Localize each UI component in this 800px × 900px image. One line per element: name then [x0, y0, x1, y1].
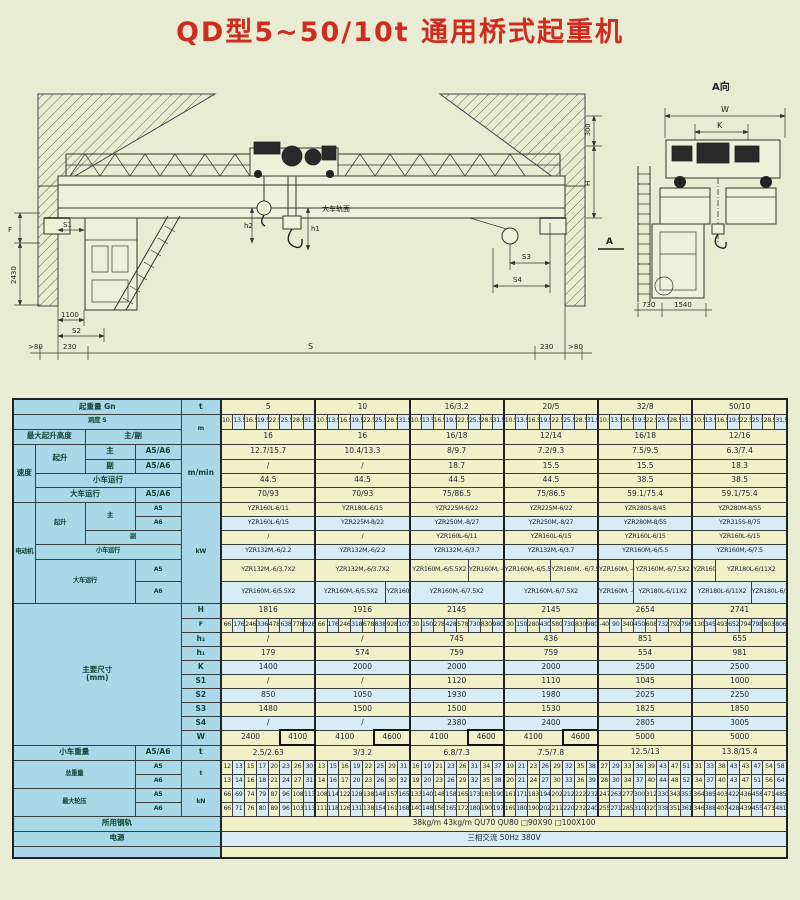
- data-cell: 13.5: [421, 414, 433, 429]
- header-cell: 最大起升高度: [13, 429, 85, 444]
- data-cell: 22.5: [645, 414, 657, 429]
- span-dimension: >80 230 S 230 >80: [28, 306, 592, 360]
- data-cell: YZR160M,-6/5.5: [598, 544, 692, 559]
- data-cell: 50/10: [692, 399, 787, 414]
- side-hook: [712, 178, 726, 248]
- data-cell: YZR132M,-6/2.2: [315, 544, 409, 559]
- data-cell: 19: [421, 760, 433, 774]
- dim-230-right-label: 230: [540, 343, 553, 351]
- data-cell: 796: [681, 618, 693, 632]
- data-cell: 30: [386, 774, 398, 788]
- dim-300-label: 300: [584, 124, 592, 136]
- data-cell: 114: [327, 788, 339, 802]
- data-cell: 148: [374, 788, 386, 802]
- side-view-a: A向 W K: [634, 80, 785, 317]
- data-cell: 154: [374, 802, 386, 816]
- dim-s4-label: S4: [513, 276, 522, 284]
- data-cell: 19.5: [633, 414, 645, 429]
- header-cell: A6: [135, 802, 181, 816]
- data-cell: 29: [610, 760, 622, 774]
- data-cell: 1480: [221, 702, 315, 716]
- data-cell: 20/5: [504, 399, 598, 414]
- data-cell: 580: [551, 618, 563, 632]
- data-cell: 981: [692, 646, 787, 660]
- data-cell: 794: [739, 618, 751, 632]
- data-cell: 3/3.2: [315, 745, 409, 760]
- data-cell: 30: [410, 618, 422, 632]
- data-cell: 171: [516, 788, 528, 802]
- data-cell: 16: [339, 760, 351, 774]
- data-cell: 278: [433, 618, 445, 632]
- header-cell: 最大轮压: [13, 788, 135, 816]
- header-cell: A6: [135, 581, 181, 603]
- data-cell: 202: [539, 802, 551, 816]
- data-cell: 320: [645, 802, 657, 816]
- data-cell: /: [221, 530, 315, 544]
- data-cell: 2500: [692, 660, 787, 674]
- data-cell: 1500: [410, 702, 504, 716]
- data-cell: YZR160M,-6/5.5X2: [410, 559, 469, 581]
- data-cell: YZR180L-6/15X2: [751, 581, 787, 603]
- data-cell: 37: [704, 774, 716, 788]
- data-cell: 36: [633, 760, 645, 774]
- data-cell: 745: [410, 632, 504, 646]
- spec-sheet-page: QD型5~50/10t 通用桥式起重机: [0, 0, 800, 900]
- data-cell: 271: [610, 802, 622, 816]
- data-cell: 240: [586, 802, 598, 816]
- data-cell: 8/9.7: [410, 444, 504, 459]
- data-cell: 43: [657, 760, 669, 774]
- data-cell: 52: [681, 774, 693, 788]
- data-cell: 16.5: [716, 414, 728, 429]
- data-cell: 158: [445, 788, 457, 802]
- data-cell: 27: [292, 774, 304, 788]
- data-cell: 980: [586, 618, 598, 632]
- data-cell: 130: [692, 618, 704, 632]
- data-cell: 176: [327, 618, 339, 632]
- data-cell: 96: [280, 802, 292, 816]
- data-cell: 43: [728, 760, 740, 774]
- data-cell: 16/3.2: [410, 399, 504, 414]
- header-cell: 电动机: [13, 502, 35, 603]
- header-cell: t: [181, 745, 221, 760]
- data-cell: 194: [539, 788, 551, 802]
- data-cell: 89: [268, 802, 280, 816]
- data-cell: 25.5: [468, 414, 480, 429]
- data-cell: 70/93: [315, 487, 409, 502]
- data-cell: 37: [492, 760, 504, 774]
- drawing-area: h2 h1 大车轨面: [0, 58, 800, 395]
- data-cell: 19.5: [445, 414, 457, 429]
- data-cell: 19.5: [351, 414, 363, 429]
- data-cell: 161: [504, 788, 516, 802]
- data-cell: 31.5: [681, 414, 693, 429]
- header-cell: A5: [135, 788, 181, 802]
- data-cell: 247: [598, 788, 610, 802]
- data-cell: 16.5: [433, 414, 445, 429]
- data-cell: 19.5: [256, 414, 268, 429]
- data-cell: 232: [574, 802, 586, 816]
- header-cell: S3: [181, 702, 221, 716]
- data-cell: YZR160L-6/11: [410, 530, 504, 544]
- data-cell: 13.5: [704, 414, 716, 429]
- data-cell: 345: [704, 618, 716, 632]
- data-cell: 75/86.5: [410, 487, 504, 502]
- header-cell: m: [181, 414, 221, 444]
- data-cell: YZR225M-6/22: [504, 502, 598, 516]
- data-cell: 25.5: [280, 414, 292, 429]
- data-cell: 759: [410, 646, 504, 660]
- data-cell: 21: [433, 760, 445, 774]
- side-end-truck: [652, 224, 704, 298]
- data-cell: 14: [315, 774, 327, 788]
- data-cell: 25.5: [563, 414, 575, 429]
- data-cell: 179: [221, 646, 315, 660]
- header-cell: 主/副: [85, 429, 181, 444]
- header-cell: A5: [135, 559, 181, 581]
- data-cell: 21: [516, 760, 528, 774]
- data-cell: 3005: [692, 716, 787, 730]
- data-cell: 2145: [410, 603, 504, 618]
- data-cell: 40: [645, 774, 657, 788]
- data-cell: 16/18: [410, 429, 504, 444]
- data-cell: 246: [339, 618, 351, 632]
- data-cell: YZR225M-6/22: [410, 502, 504, 516]
- data-cell: 574: [315, 646, 409, 660]
- data-cell: 30: [610, 774, 622, 788]
- data-cell: 838: [374, 618, 386, 632]
- data-cell: 23: [362, 774, 374, 788]
- data-cell: 2.5/2.63: [221, 745, 315, 760]
- data-cell: 34: [692, 774, 704, 788]
- data-cell: 1120: [410, 674, 504, 688]
- data-cell: 351: [669, 802, 681, 816]
- data-cell: 16.5: [622, 414, 634, 429]
- data-cell: 58: [775, 760, 787, 774]
- data-cell: 10.5: [410, 414, 422, 429]
- data-cell: 13.5: [233, 414, 245, 429]
- data-cell: 180: [468, 802, 480, 816]
- data-cell: 33: [563, 774, 575, 788]
- data-cell: 25: [374, 760, 386, 774]
- data-cell: 23: [445, 760, 457, 774]
- data-cell: 40: [716, 774, 728, 788]
- data-cell: YZR180L-6/11X2: [633, 581, 692, 603]
- header-cell: S1: [181, 674, 221, 688]
- data-cell: 2000: [410, 660, 504, 674]
- header-cell: H: [181, 603, 221, 618]
- data-cell: YZR160M, -6/7.5X2: [551, 559, 598, 581]
- header-cell: S2: [181, 688, 221, 702]
- data-cell: 806: [775, 618, 787, 632]
- data-cell: 15.5: [504, 459, 598, 473]
- data-cell: YZR160M,-6/5.5X2: [504, 559, 551, 581]
- data-cell: 47: [739, 774, 751, 788]
- data-cell: 277: [622, 788, 634, 802]
- data-cell: 1050: [315, 688, 409, 702]
- header-cell: A5: [135, 502, 181, 516]
- header-cell: A5/A6: [135, 487, 181, 502]
- data-cell: 13.8/15.4: [692, 745, 787, 760]
- data-cell: /: [315, 716, 409, 730]
- spec-table-wrap: 起重量 Gnt51016/3.220/532/850/10跨度 Sm10.513…: [12, 398, 788, 859]
- data-cell: /: [221, 716, 315, 730]
- end-pulley: [470, 218, 518, 244]
- data-cell: 66: [221, 788, 233, 802]
- data-cell: 111: [315, 802, 327, 816]
- data-cell: YZR160M,-6/5.5X2: [221, 581, 315, 603]
- data-cell: 43: [728, 774, 740, 788]
- data-cell: 485: [775, 788, 787, 802]
- data-cell: 1980: [504, 688, 598, 702]
- data-cell: YZR132M,-6/3.7X2: [315, 559, 409, 581]
- data-cell: 31: [398, 760, 410, 774]
- data-cell: 2400: [504, 716, 598, 730]
- data-cell: 30: [304, 760, 316, 774]
- data-cell: YZR250M,-8/27: [504, 516, 598, 530]
- data-cell: 458: [751, 788, 763, 802]
- data-cell: YZR160M, -6/7.5X2: [468, 559, 503, 581]
- data-cell: 638: [280, 618, 292, 632]
- data-cell: 39: [586, 774, 598, 788]
- data-cell: 38kg/m 43kg/m QU70 QU80 □90X90 □100X100: [221, 816, 787, 831]
- driver-cab: [85, 218, 137, 310]
- data-cell: 263: [610, 788, 622, 802]
- data-cell: 353: [681, 788, 693, 802]
- data-cell: 10.5: [598, 414, 610, 429]
- data-cell: 14: [233, 774, 245, 788]
- data-cell: 928: [386, 618, 398, 632]
- data-cell: 1045: [598, 674, 692, 688]
- data-cell: YZR132M,-6/2.2: [221, 544, 315, 559]
- data-cell: 5000: [598, 730, 692, 745]
- data-cell: 2000: [504, 660, 598, 674]
- data-cell: 25.5: [374, 414, 386, 429]
- data-cell: 32: [563, 760, 575, 774]
- data-cell: 76: [245, 802, 257, 816]
- header-cell: t: [181, 399, 221, 414]
- data-cell: 19.5: [728, 414, 740, 429]
- data-cell: 35: [574, 760, 586, 774]
- data-cell: 655: [692, 632, 787, 646]
- data-cell: 12.7/15.7: [221, 444, 315, 459]
- data-cell: 2741: [692, 603, 787, 618]
- data-cell: 23: [527, 760, 539, 774]
- data-cell: 38: [716, 760, 728, 774]
- data-cell: 255: [598, 802, 610, 816]
- data-cell: /: [315, 674, 409, 688]
- data-cell: 108: [292, 788, 304, 802]
- data-cell: 66: [221, 618, 233, 632]
- data-cell: 28.5: [763, 414, 775, 429]
- dim-h1-label: h1: [311, 225, 320, 233]
- data-cell: 128: [351, 788, 363, 802]
- data-cell: 422: [728, 788, 740, 802]
- data-cell: 1000: [692, 674, 787, 688]
- data-cell: 10: [315, 399, 409, 414]
- data-cell: 37: [633, 774, 645, 788]
- dim-s2-label: S2: [72, 327, 81, 335]
- data-cell: 10.5: [692, 414, 704, 429]
- data-cell: 18.7: [410, 459, 504, 473]
- data-cell: 732: [657, 618, 669, 632]
- page-title: QD型5~50/10t 通用桥式起重机: [0, 10, 800, 49]
- data-cell: 2380: [410, 716, 504, 730]
- data-cell: 16/18: [598, 429, 692, 444]
- data-cell: 24: [527, 774, 539, 788]
- data-cell: 13.5: [327, 414, 339, 429]
- data-cell: 38: [586, 760, 598, 774]
- header-cell: 电源: [13, 831, 221, 846]
- data-cell: 三相交流 50Hz 380V: [221, 831, 787, 846]
- data-cell: 310: [633, 802, 645, 816]
- data-cell: 4100: [504, 730, 563, 745]
- data-cell: 108: [315, 788, 327, 802]
- data-cell: 471: [763, 788, 775, 802]
- data-cell: 407: [716, 802, 728, 816]
- header-cell: 起升: [35, 502, 85, 544]
- data-cell: 31: [304, 774, 316, 788]
- header-cell: 大车运行: [35, 559, 135, 603]
- dim-w-label: W: [721, 105, 729, 114]
- data-cell: YZR160M,-6/5.5X2: [315, 581, 386, 603]
- data-cell: 48: [669, 774, 681, 788]
- header-cell: A5: [135, 760, 181, 774]
- data-cell: 131: [351, 802, 363, 816]
- dim-gt80-left-label: >80: [28, 343, 43, 351]
- data-cell: 140: [421, 788, 433, 802]
- data-cell: 27: [539, 774, 551, 788]
- data-cell: YZR160L-6/15: [598, 530, 692, 544]
- data-cell: 64: [775, 774, 787, 788]
- data-cell: 980: [492, 618, 504, 632]
- data-cell: 19.5: [539, 414, 551, 429]
- data-cell: 35: [480, 774, 492, 788]
- header-cell: A6: [135, 516, 181, 530]
- data-cell: 165: [457, 788, 469, 802]
- data-cell: 87: [268, 788, 280, 802]
- data-cell: 51: [681, 760, 693, 774]
- data-cell: /: [221, 674, 315, 688]
- data-cell: 197: [492, 802, 504, 816]
- dim-230-left-label: 230: [63, 343, 76, 351]
- data-cell: 361: [681, 802, 693, 816]
- header-cell: kW: [181, 502, 221, 603]
- data-cell: 1530: [504, 702, 598, 716]
- header-cell: 副: [85, 530, 181, 544]
- dim-k-label: K: [717, 121, 723, 130]
- data-cell: 113: [304, 788, 316, 802]
- data-cell: 330: [657, 788, 669, 802]
- dim-1540-label: 1540: [674, 301, 692, 309]
- data-cell: 1930: [410, 688, 504, 702]
- side-trolley: [666, 140, 780, 188]
- data-cell: 2400: [221, 730, 280, 745]
- data-cell: 90: [610, 618, 622, 632]
- data-cell: 75/86.5: [504, 487, 598, 502]
- data-cell: 16: [245, 774, 257, 788]
- data-cell: 66: [221, 802, 233, 816]
- data-cell: 428: [728, 802, 740, 816]
- data-cell: 403: [716, 788, 728, 802]
- data-cell: 478: [268, 618, 280, 632]
- data-cell: 928: [304, 618, 316, 632]
- data-cell: 13: [315, 760, 327, 774]
- data-cell: YZR180L-6/11X2: [716, 559, 787, 581]
- data-cell: 51: [751, 774, 763, 788]
- section-arrow: A: [598, 237, 624, 249]
- data-cell: 803: [763, 618, 775, 632]
- data-cell: 26: [445, 774, 457, 788]
- data-cell: 28.5: [292, 414, 304, 429]
- data-cell: 798: [751, 618, 763, 632]
- data-cell: 428: [445, 618, 457, 632]
- data-cell: 34: [480, 760, 492, 774]
- header-cell: W: [181, 730, 221, 745]
- data-cell: 118: [327, 802, 339, 816]
- data-cell: 1825: [598, 702, 692, 716]
- dims-right-wall: 300 H: [584, 116, 602, 218]
- header-cell: K: [181, 660, 221, 674]
- data-cell: YZR160L-6/11: [221, 502, 315, 516]
- data-cell: 113: [304, 802, 316, 816]
- data-cell: 336: [256, 618, 268, 632]
- data-cell: YZR160L-6/15: [221, 516, 315, 530]
- header-cell: 所用钢轨: [13, 816, 221, 831]
- data-cell: 26: [457, 760, 469, 774]
- data-cell: 2500: [598, 660, 692, 674]
- data-cell: 285: [622, 802, 634, 816]
- data-cell: 30: [551, 774, 563, 788]
- data-cell: 12/16: [692, 429, 787, 444]
- data-cell: 232: [586, 788, 598, 802]
- data-cell: 436: [739, 788, 751, 802]
- data-cell: 26: [539, 760, 551, 774]
- header-cell: 总重量: [13, 760, 135, 788]
- data-cell: 18: [256, 774, 268, 788]
- header-cell: A5/A6: [135, 745, 181, 760]
- data-cell: 38: [492, 774, 504, 788]
- data-cell: 22.5: [739, 414, 751, 429]
- data-cell: 23: [433, 774, 445, 788]
- data-cell: 364: [692, 788, 704, 802]
- data-cell: 340: [622, 618, 634, 632]
- data-cell: 678: [362, 618, 374, 632]
- data-cell: YZR160M,-6/7.5X2: [410, 581, 504, 603]
- data-cell: 21: [268, 774, 280, 788]
- data-cell: 172: [457, 802, 469, 816]
- data-cell: 12.5/13: [598, 745, 692, 760]
- data-cell: 792: [669, 618, 681, 632]
- data-cell: YZR225M-8/22: [315, 516, 409, 530]
- data-cell: 59.1/75.4: [692, 487, 787, 502]
- data-cell: YZR160L-6/15: [692, 530, 787, 544]
- header-cell: 跨度 S: [13, 414, 181, 429]
- data-cell: 32/8: [598, 399, 692, 414]
- dim-s1-label: S1: [63, 221, 72, 229]
- data-cell: [221, 846, 787, 858]
- data-cell: 22.5: [551, 414, 563, 429]
- data-cell: 38.5: [598, 473, 692, 487]
- data-cell: 2654: [598, 603, 692, 618]
- data-cell: 211: [551, 802, 563, 816]
- data-cell: 10.5: [504, 414, 516, 429]
- header-cell: kN: [181, 788, 221, 816]
- data-cell: 13: [221, 774, 233, 788]
- data-cell: 148: [421, 802, 433, 816]
- data-cell: YZR160M,-6/7.5: [692, 544, 787, 559]
- data-cell: YZR250M,-8/27: [410, 516, 504, 530]
